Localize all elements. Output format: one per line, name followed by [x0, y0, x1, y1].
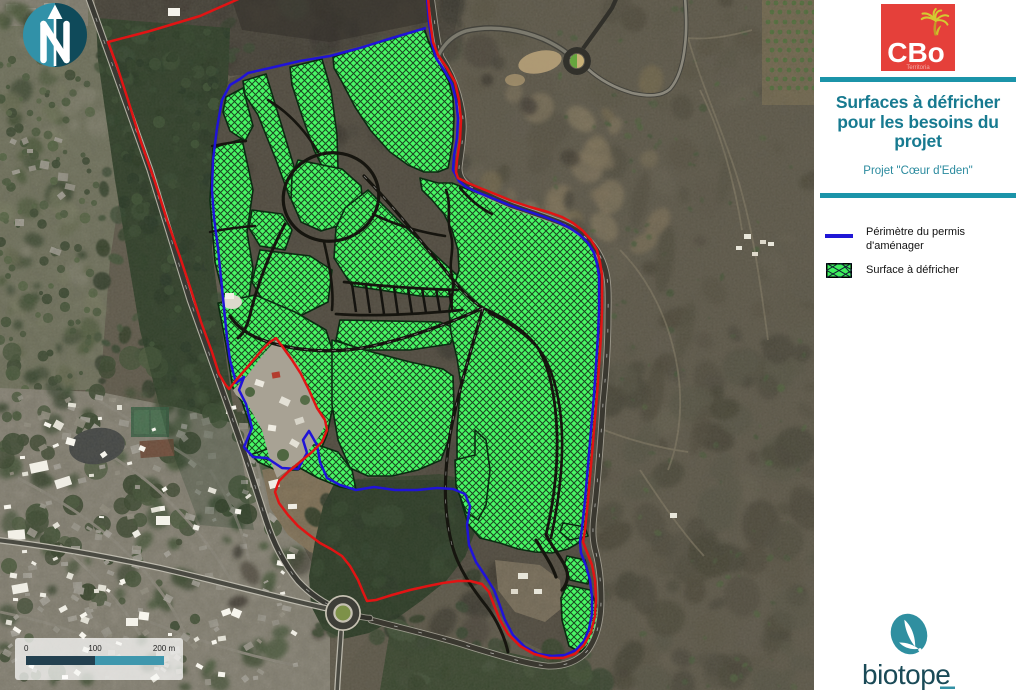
svg-text:100: 100	[88, 644, 102, 653]
svg-text:CBo: CBo	[887, 37, 945, 68]
svg-text:biotope: biotope	[862, 659, 950, 690]
svg-text:200 m: 200 m	[153, 644, 176, 653]
svg-text:Territoria: Territoria	[906, 65, 930, 71]
svg-text:0: 0	[24, 644, 29, 653]
